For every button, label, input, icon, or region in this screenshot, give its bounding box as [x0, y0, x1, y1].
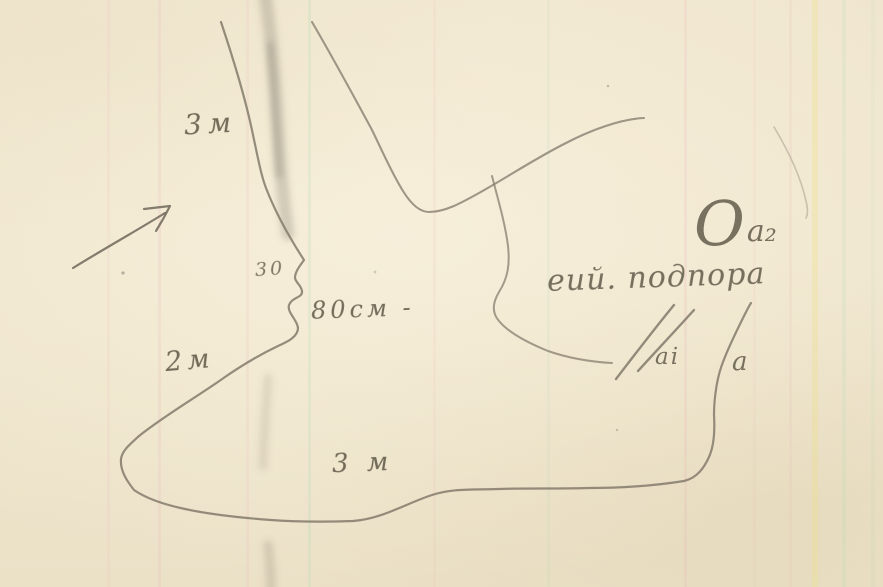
big-o-letter: О [694, 187, 745, 260]
pencil-sketch [0, 0, 883, 587]
faint-curve-top-right [774, 127, 808, 218]
measurement-label-lower-left: 2м [164, 345, 216, 376]
measurement-label-notch: 30 [254, 259, 285, 280]
ear-notch-back-curve [312, 22, 644, 212]
point-label-a1: аi [655, 346, 680, 369]
measurement-label-top-left: 3м [183, 109, 237, 140]
direction-arrow-icon [73, 206, 170, 268]
measurement-label-bottom: 3 м [332, 449, 394, 477]
a2-letter: а₂ [747, 214, 777, 249]
arrow-shaft [73, 213, 165, 268]
point-label-o-a2: Оа₂ [694, 193, 775, 255]
scanned-sketch-page: 3м 30 80см - 2м 3 м Оа₂ еий. подпора аi … [0, 0, 883, 587]
graphite-smudge [263, 0, 288, 587]
handwritten-note: еий. подпора [547, 259, 766, 297]
point-label-a: а [732, 349, 748, 375]
measurement-label-mouth: 80см - [311, 295, 415, 323]
